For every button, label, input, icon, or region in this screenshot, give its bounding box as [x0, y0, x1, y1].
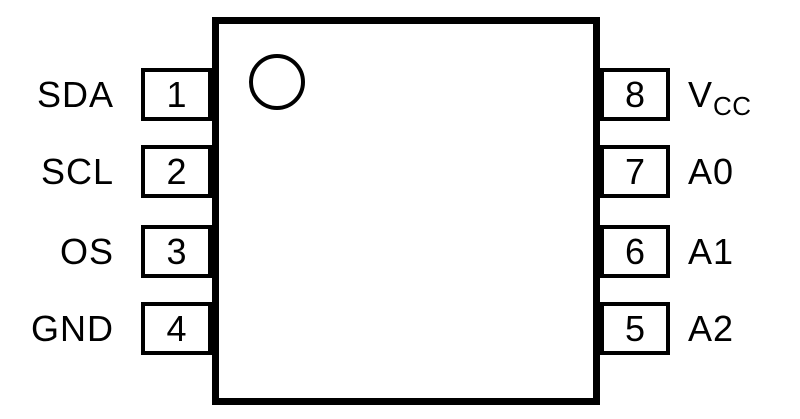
pin-box-7: 7	[600, 145, 670, 198]
pin1-indicator-dot	[249, 54, 305, 110]
pin-box-2: 2	[141, 145, 212, 198]
pin-label-a0: A0	[688, 145, 734, 198]
pin-label-gnd: GND	[0, 302, 114, 355]
pin-label-a1-main: A1	[688, 231, 734, 272]
pin-box-3: 3	[141, 225, 212, 278]
pin-number-1: 1	[166, 77, 186, 113]
vcc-subscript: CC	[713, 91, 752, 121]
pin-number-7: 7	[625, 154, 645, 190]
pin-label-vcc: VCC	[688, 68, 752, 121]
pin-number-5: 5	[625, 311, 645, 347]
pin-number-2: 2	[166, 154, 186, 190]
pin-box-1: 1	[141, 68, 212, 121]
pin-number-4: 4	[166, 311, 186, 347]
pin-number-6: 6	[625, 234, 645, 270]
pin-label-a2: A2	[688, 302, 734, 355]
ic-pinout-diagram: SDA SCL OS GND 1 2 3 4 8 7 6 5 VCC A0 A1…	[0, 0, 800, 419]
pin-label-sda: SDA	[0, 68, 114, 121]
pin-box-5: 5	[600, 302, 670, 355]
pin-label-scl: SCL	[0, 145, 114, 198]
pin-number-3: 3	[166, 234, 186, 270]
pin-box-8: 8	[600, 68, 670, 121]
pin-box-6: 6	[600, 225, 670, 278]
pin-number-8: 8	[625, 77, 645, 113]
pin-label-vcc-main: V	[688, 74, 713, 115]
pin-box-4: 4	[141, 302, 212, 355]
pin-label-a2-main: A2	[688, 308, 734, 349]
pin-label-a1: A1	[688, 225, 734, 278]
pin-label-a0-main: A0	[688, 151, 734, 192]
pin-label-os: OS	[0, 225, 114, 278]
